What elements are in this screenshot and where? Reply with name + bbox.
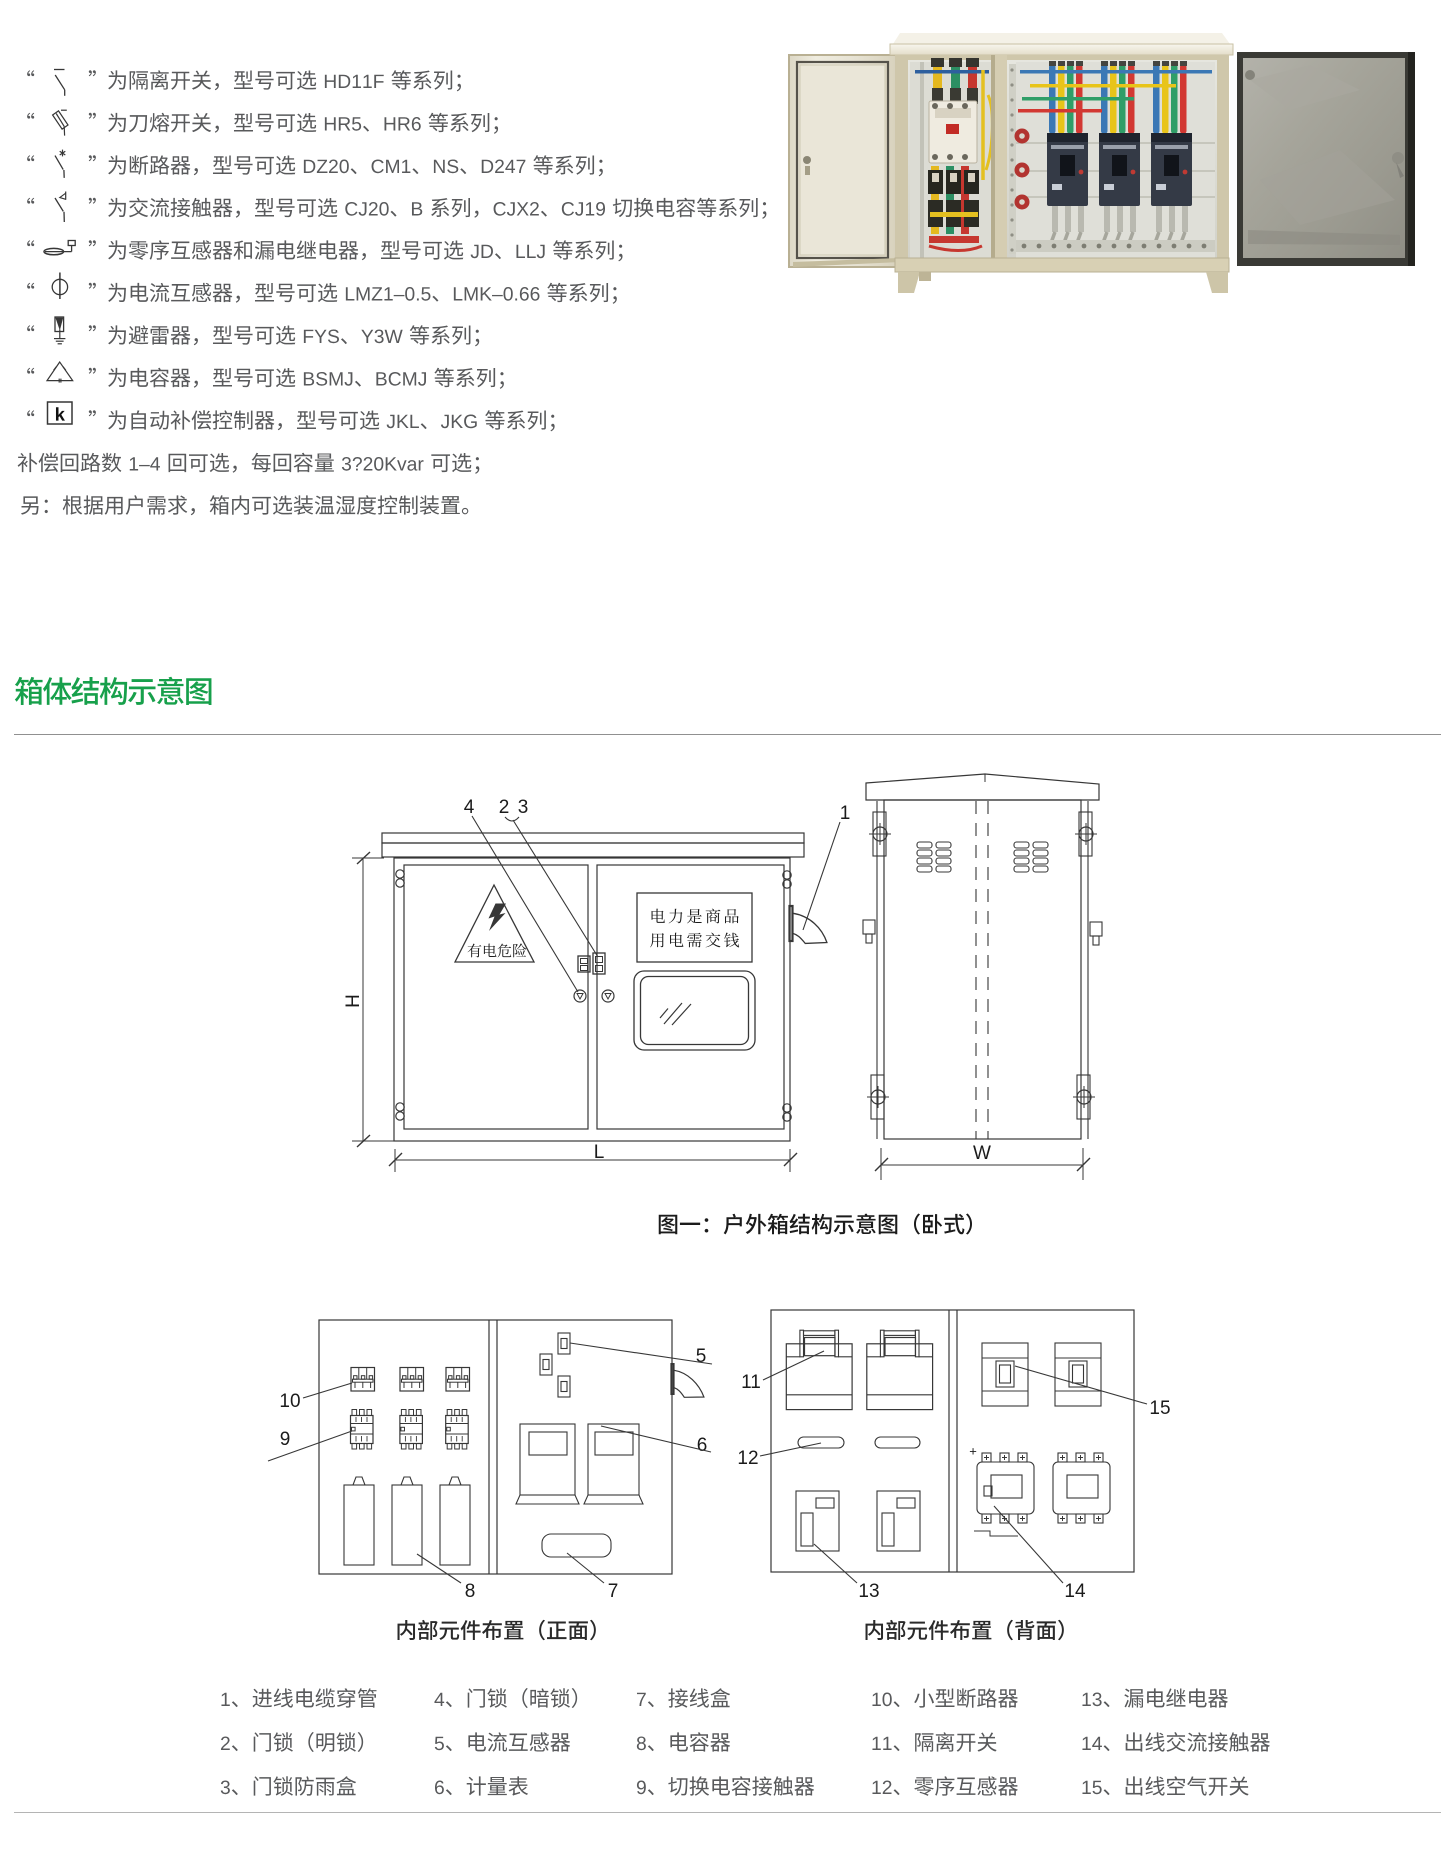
svg-text:7: 7 xyxy=(608,1581,619,1602)
svg-text:L: L xyxy=(594,1142,605,1163)
svg-text:+: + xyxy=(969,1444,977,1459)
svg-text:4: 4 xyxy=(464,797,475,818)
svg-text:6: 6 xyxy=(697,1435,708,1456)
svg-text:1: 1 xyxy=(840,803,851,824)
svg-text:W: W xyxy=(973,1143,991,1164)
svg-text:10: 10 xyxy=(279,1391,300,1412)
svg-text:15: 15 xyxy=(1149,1398,1170,1419)
svg-text:5: 5 xyxy=(696,1346,707,1367)
svg-text:14: 14 xyxy=(1064,1581,1086,1602)
svg-text:3: 3 xyxy=(518,797,529,818)
svg-text:2: 2 xyxy=(499,797,510,818)
svg-text:12: 12 xyxy=(737,1448,758,1469)
svg-text:8: 8 xyxy=(465,1581,476,1602)
svg-text:9: 9 xyxy=(280,1429,291,1450)
svg-text:13: 13 xyxy=(858,1581,879,1602)
svg-text:H: H xyxy=(343,994,364,1008)
svg-text:11: 11 xyxy=(741,1372,761,1393)
